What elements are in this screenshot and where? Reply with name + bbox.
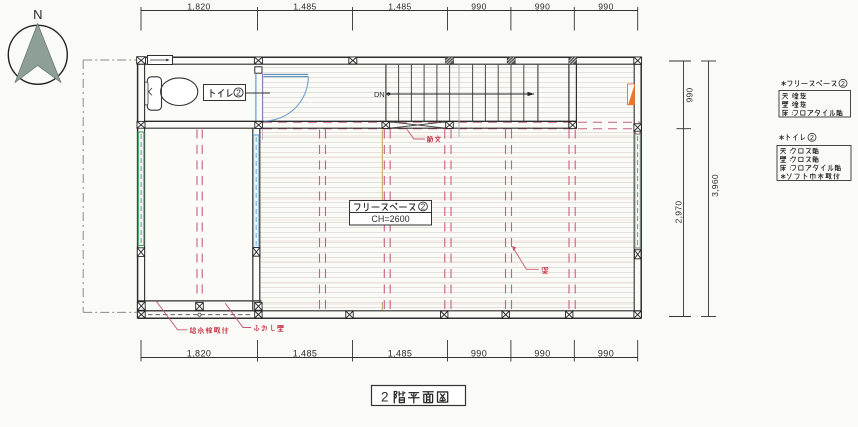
svg-text:N: N bbox=[33, 7, 42, 22]
svg-text:2: 2 bbox=[381, 390, 389, 405]
svg-text:990: 990 bbox=[598, 1, 614, 11]
svg-text:990: 990 bbox=[598, 348, 614, 358]
svg-text:1,820: 1,820 bbox=[187, 348, 212, 358]
svg-text:990: 990 bbox=[471, 348, 487, 358]
svg-text:2: 2 bbox=[421, 203, 426, 212]
svg-text:1,485: 1,485 bbox=[293, 348, 318, 358]
svg-text:2: 2 bbox=[810, 135, 814, 142]
svg-text:990: 990 bbox=[471, 1, 487, 11]
svg-text:1,485: 1,485 bbox=[388, 348, 413, 358]
svg-text:2,970: 2,970 bbox=[674, 201, 684, 224]
svg-text:1,820: 1,820 bbox=[187, 1, 211, 11]
svg-text:2: 2 bbox=[841, 81, 845, 88]
svg-text:1,485: 1,485 bbox=[388, 1, 412, 11]
svg-text:990: 990 bbox=[685, 87, 695, 102]
svg-text:990: 990 bbox=[534, 348, 550, 358]
svg-text:3,960: 3,960 bbox=[710, 174, 720, 197]
svg-text:990: 990 bbox=[535, 1, 551, 11]
svg-text:DN: DN bbox=[374, 90, 384, 99]
svg-text:1,485: 1,485 bbox=[293, 1, 317, 11]
svg-text:CH=2600: CH=2600 bbox=[371, 214, 409, 224]
svg-text:2: 2 bbox=[236, 88, 241, 98]
